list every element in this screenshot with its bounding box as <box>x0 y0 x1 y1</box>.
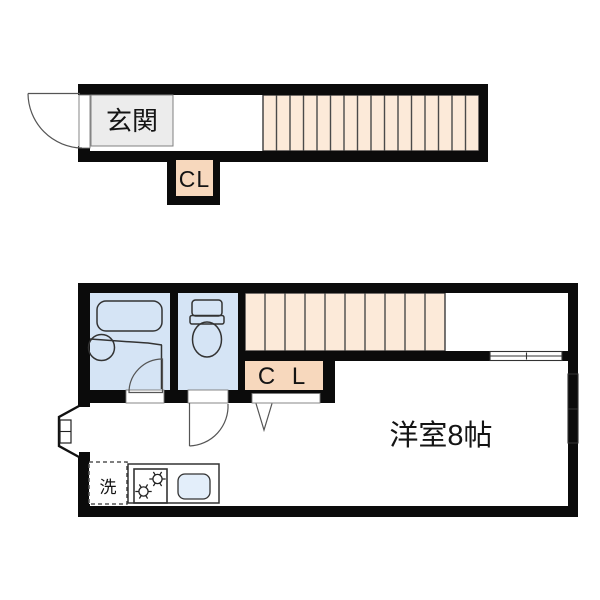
western-room-label: 洋室8帖 <box>389 419 492 452</box>
toilet-room <box>178 293 238 390</box>
closet-opening <box>252 394 320 404</box>
floorplan-canvas: 玄関 CL <box>0 0 600 600</box>
floor1-entrance-opening <box>79 95 90 148</box>
kitchen-sink <box>178 474 210 499</box>
floorplan-page: 玄関 CL <box>0 0 600 600</box>
entrance-label: 玄関 <box>106 106 158 136</box>
floor2-closet-label: C L <box>258 363 310 390</box>
laundry-label: 洗 <box>100 478 117 497</box>
floor1-closet-label: CL <box>179 166 210 192</box>
bay-window <box>59 406 90 457</box>
toilet-door-opening <box>188 390 228 403</box>
